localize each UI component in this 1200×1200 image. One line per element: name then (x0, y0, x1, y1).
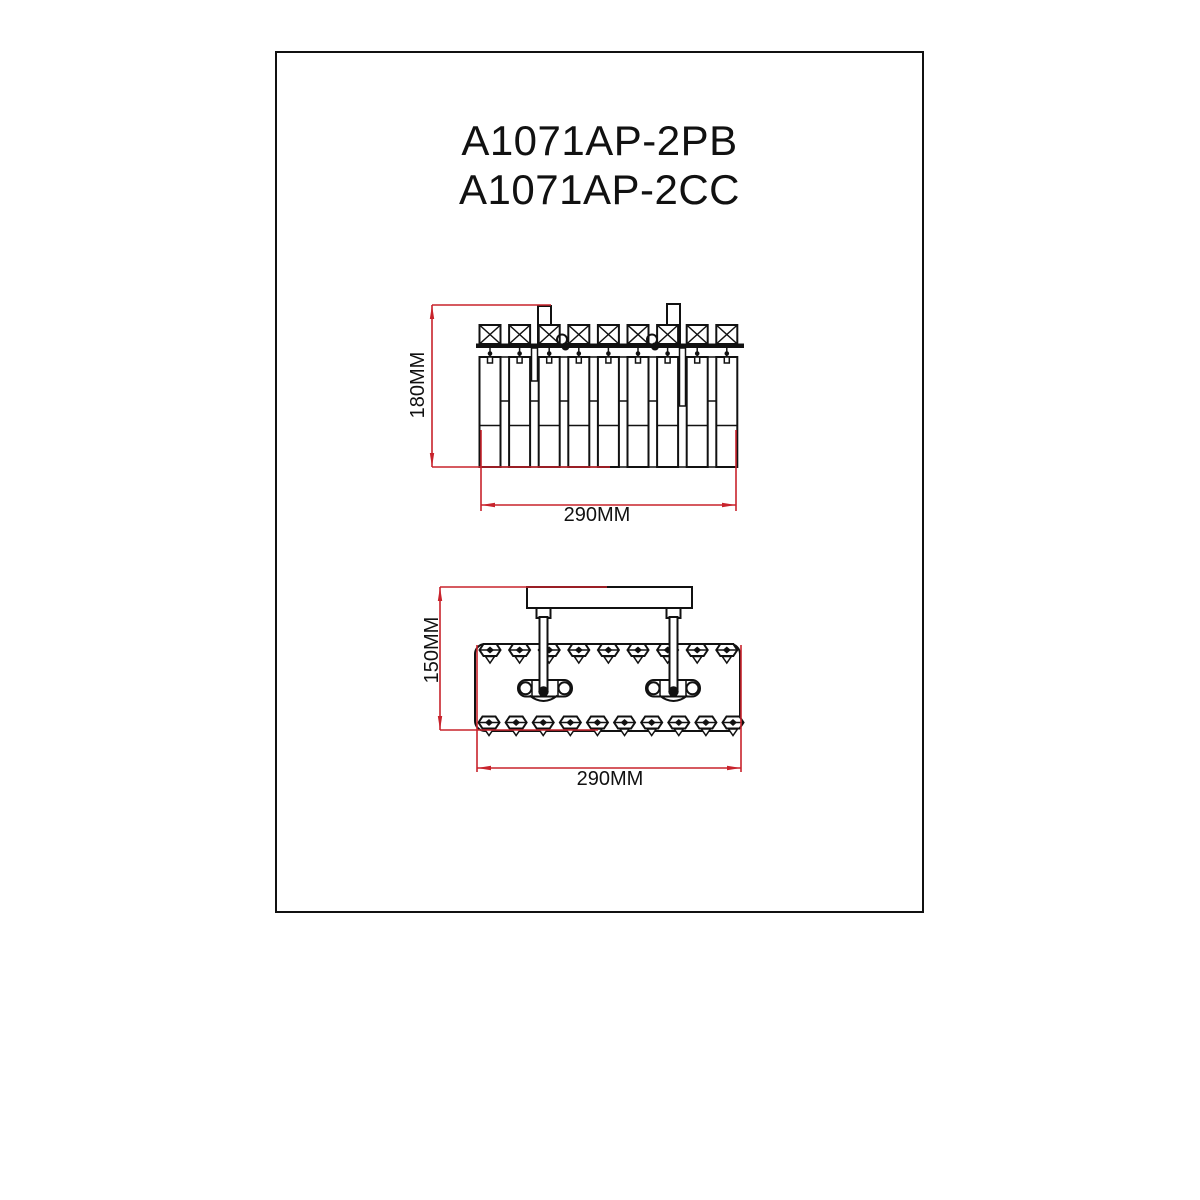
socket-ball (538, 686, 548, 696)
back-hanger-rod (680, 348, 686, 406)
pin-dot (665, 351, 670, 356)
crystal-top-notch (606, 357, 611, 363)
top-right-arm (670, 617, 678, 691)
front-crystal-bar (568, 357, 589, 467)
technical-drawing: 180MM 290MM (0, 0, 1200, 1200)
mounting-blocks (480, 325, 738, 344)
crystal-top-notch (695, 357, 700, 363)
crystal-top-notch (636, 357, 641, 363)
prism-tip (674, 729, 683, 736)
prism-tip (729, 729, 738, 736)
pin-dot (725, 351, 730, 356)
crystal-top-notch (517, 357, 522, 363)
front-crystal-row (480, 357, 738, 467)
pin-dot (606, 351, 611, 356)
arrow-left-icon (481, 503, 495, 507)
pin-dot (488, 351, 493, 356)
top-height-label: 150MM (421, 617, 443, 684)
wall-plate (527, 587, 692, 608)
back-hanger-rod (532, 348, 538, 381)
crystal-top-notch (576, 357, 581, 363)
top-view: 150MM 290MM (421, 587, 744, 790)
front-view: 180MM 290MM (407, 304, 744, 526)
arrow-up-icon (430, 305, 434, 319)
front-crystal-bar (480, 357, 501, 467)
arrow-up-icon (438, 587, 442, 601)
crystal-top-notch (724, 357, 729, 363)
crystal-top-notch (665, 357, 670, 363)
arrow-left-icon (477, 766, 491, 770)
ball-joint (562, 343, 570, 351)
top-left-arm (540, 617, 548, 691)
prism-row-top (480, 644, 738, 663)
front-crystal-bar (598, 357, 619, 467)
socket-ball (668, 686, 678, 696)
top-width-label: 290MM (577, 768, 644, 790)
pin-dot (695, 351, 700, 356)
crystal-top-notch (547, 357, 552, 363)
pin-dot (577, 351, 582, 356)
front-crystal-bar (657, 357, 678, 467)
arrow-right-icon (722, 503, 736, 507)
hanging-pins (488, 348, 729, 357)
crystal-top-notch (488, 357, 493, 363)
arrow-right-icon (727, 766, 741, 770)
front-width-label: 290MM (564, 504, 631, 526)
front-crystal-bar (539, 357, 560, 467)
front-crystal-bar (628, 357, 649, 467)
pin-dot (547, 351, 552, 356)
front-crystal-bar (509, 357, 530, 467)
prism-tip (647, 729, 656, 736)
pin-dot (517, 351, 522, 356)
arrow-down-icon (430, 453, 434, 467)
front-crystal-bar (716, 357, 737, 467)
front-height-label: 180MM (407, 352, 429, 419)
prism-tip (620, 729, 629, 736)
prism-tip (701, 729, 710, 736)
arrow-down-icon (438, 716, 442, 730)
pin-dot (636, 351, 641, 356)
front-crystal-bar (687, 357, 708, 467)
ball-joint (651, 343, 659, 351)
